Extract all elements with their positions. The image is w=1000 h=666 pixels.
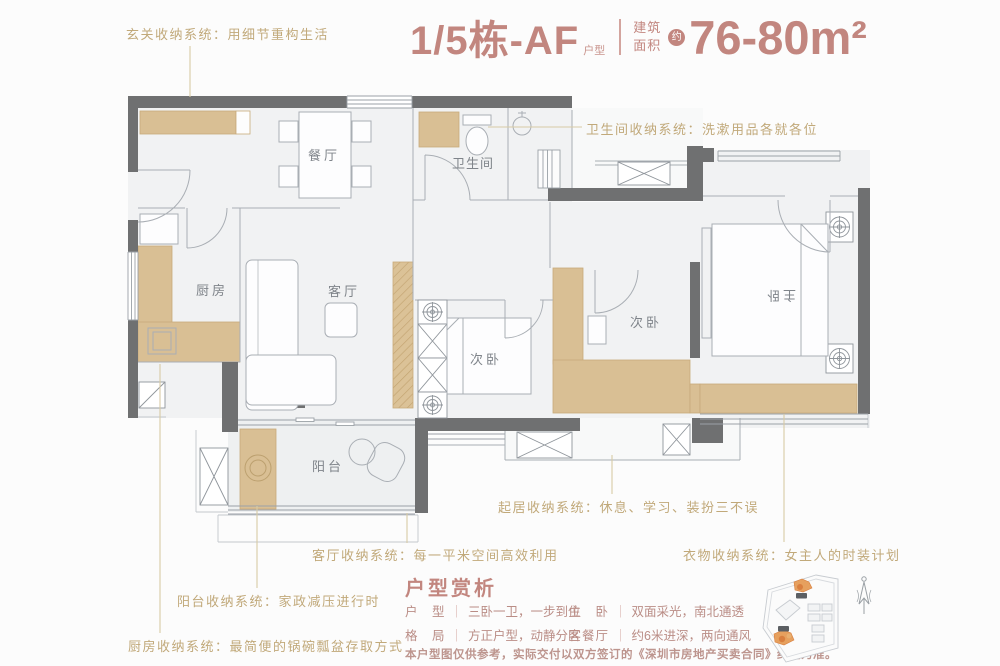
room-label-kitchen: 厨房 (196, 280, 228, 299)
duct-shaft-right (663, 424, 690, 455)
dining-chair (352, 166, 371, 187)
annotation-living-storage: 起居收纳系统：休息、学习、装扮三不误 (498, 497, 759, 516)
bedroom-storage-horizontal (553, 360, 690, 413)
duct-shaft-mid (517, 432, 572, 458)
master-wardrobe (700, 384, 857, 413)
analysis-row-2: 格 局｜方正户型，动静分区 客餐厅｜约6米进深，两向通风 (405, 625, 751, 644)
annotation-wardrobe: 衣物收纳系统：女主人的时装计划 (683, 545, 901, 564)
annotation-balcony: 阳台收纳系统：家政减压进行时 (177, 591, 380, 610)
analysis-item-master: 主 卧｜双面采光，南北通透 (568, 601, 744, 620)
tv-wall-storage (393, 262, 413, 408)
annotation-bathroom: 卫生间收纳系统：洗漱用品各就各位 (586, 119, 818, 138)
dining-chair (352, 121, 371, 142)
room-label-bedroom-right: 次卧 (630, 312, 662, 331)
floor-plan (0, 0, 1000, 666)
site-map (756, 570, 896, 664)
duct-shaft-left (200, 448, 228, 505)
elevator-shaft (618, 162, 670, 185)
dining-chair (279, 121, 298, 142)
analysis-item-layout: 户 型｜三卧一卫，一步到位 (405, 601, 565, 620)
annotation-kitchen: 厨房收纳系统：最简便的锅碗瓢盆存取方式 (128, 636, 404, 655)
annotation-entry: 玄关收纳系统：用细节重构生活 (126, 24, 329, 43)
dining-chair (279, 166, 298, 187)
desk (588, 316, 606, 344)
room-label-master: 主卧 (764, 287, 796, 306)
compass-icon (857, 577, 871, 614)
ac-platform (139, 382, 165, 408)
analysis-row-1: 户 型｜三卧一卫，一步到位 主 卧｜双面采光，南北通透 (405, 601, 744, 620)
fridge (140, 214, 178, 244)
room-label-living: 客厅 (328, 281, 360, 300)
nightstand-bottom (826, 344, 853, 373)
sofa-chaise (246, 355, 336, 405)
analysis-item-pattern: 格 局｜方正户型，动静分区 (405, 625, 565, 644)
analysis-heading: 户型赏析 (405, 572, 497, 601)
room-label-balcony: 阳台 (312, 456, 344, 475)
room-label-bedroom-left: 次卧 (470, 349, 502, 368)
bedroom-storage-vertical (553, 268, 583, 364)
floorplan-page: { "title": { "unit": "1/5栋-AF", "unit_su… (0, 0, 1000, 666)
annotation-livingroom: 客厅收纳系统：每一平米空间高效利用 (312, 545, 559, 564)
analysis-item-livingdining: 客餐厅｜约6米进深，两向通风 (568, 625, 750, 644)
entry-cabinet (140, 111, 236, 134)
room-label-bathroom: 卫生间 (452, 153, 494, 172)
coffee-table (325, 303, 357, 337)
room-label-dining: 餐厅 (308, 145, 340, 164)
bath-vanity (419, 112, 459, 147)
